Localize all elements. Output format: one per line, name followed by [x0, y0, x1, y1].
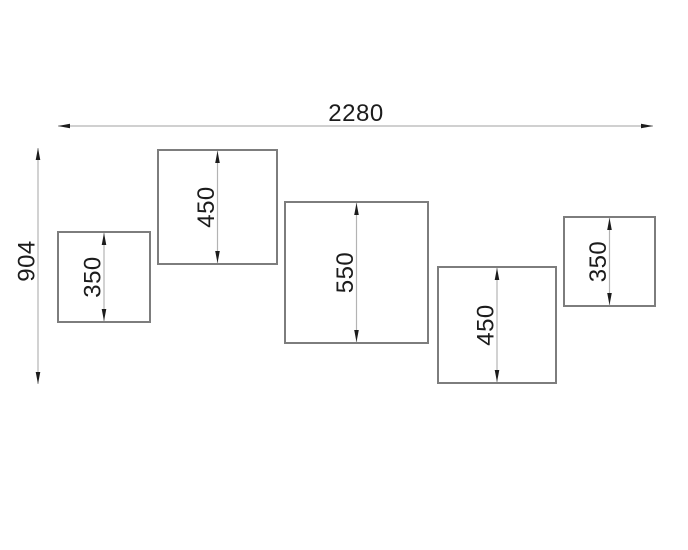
- panel-box-3-group: 550: [285, 202, 428, 343]
- panel-box-4-group: 450: [438, 267, 556, 383]
- overall-width-arrow-left-icon: [58, 124, 70, 129]
- overall-height-arrow-down-icon: [36, 372, 41, 384]
- overall-height-dimension: 904: [13, 148, 40, 384]
- panel-box-1-dimension-label: 350: [79, 256, 106, 298]
- panel-box-2-group: 450: [158, 150, 277, 264]
- panel-box-5-group: 350: [564, 217, 655, 306]
- drawing-area: 3504505504503502280904: [0, 0, 688, 550]
- panel-box-2-dimension-label: 450: [193, 186, 220, 228]
- panel-box-5-dimension-label: 350: [585, 241, 612, 283]
- panel-box-3-dimension-label: 550: [332, 252, 359, 294]
- technical-drawing-canvas: 3504505504503502280904: [0, 0, 688, 550]
- overall-width-dimension-label: 2280: [328, 100, 383, 127]
- overall-height-dimension-label: 904: [13, 240, 40, 282]
- panel-box-1-group: 350: [58, 232, 150, 322]
- overall-height-arrow-up-icon: [36, 148, 41, 160]
- overall-width-dimension: 2280: [58, 100, 653, 128]
- overall-width-arrow-right-icon: [641, 124, 653, 129]
- panel-box-4-dimension-label: 450: [472, 304, 499, 346]
